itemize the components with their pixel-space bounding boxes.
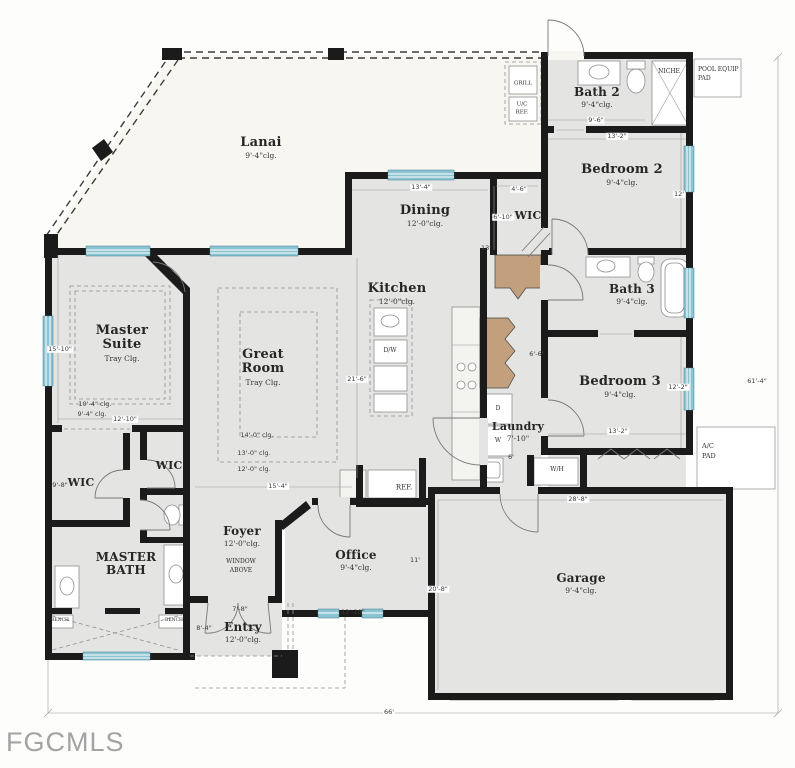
uc-ref-fixture — [509, 97, 537, 121]
door-swing — [548, 20, 584, 56]
cooktop-burner — [457, 381, 465, 389]
island-sink — [381, 315, 399, 327]
window — [684, 268, 694, 318]
washer-fixture — [485, 426, 512, 456]
bath3-toilet — [638, 262, 654, 282]
window — [684, 146, 694, 192]
grill-fixture — [509, 66, 537, 94]
window — [43, 316, 53, 386]
watermark: FGCMLS — [6, 727, 125, 758]
ac-pad — [697, 427, 775, 489]
window — [210, 246, 298, 256]
bath2-toilet — [627, 69, 645, 93]
cooktop-burner — [468, 381, 476, 389]
porch-column — [272, 650, 298, 678]
water-heater-closet — [534, 458, 578, 485]
cooktop-burner — [468, 363, 476, 371]
window — [86, 246, 150, 256]
window — [684, 368, 694, 410]
cooktop-burner — [457, 363, 465, 371]
window — [83, 652, 150, 660]
floor-plan-page: Lanai9'-4"clg.Bath 29'-4"clg.Bedroom 29'… — [0, 0, 795, 768]
fridge-fixture — [368, 470, 416, 498]
kitchen-counter — [452, 307, 480, 480]
floor-plan-drawing — [0, 0, 795, 768]
dryer-fixture — [485, 394, 512, 424]
window — [388, 170, 454, 180]
pool-equip-pad — [694, 59, 741, 97]
dishwasher-fixture — [374, 340, 407, 363]
